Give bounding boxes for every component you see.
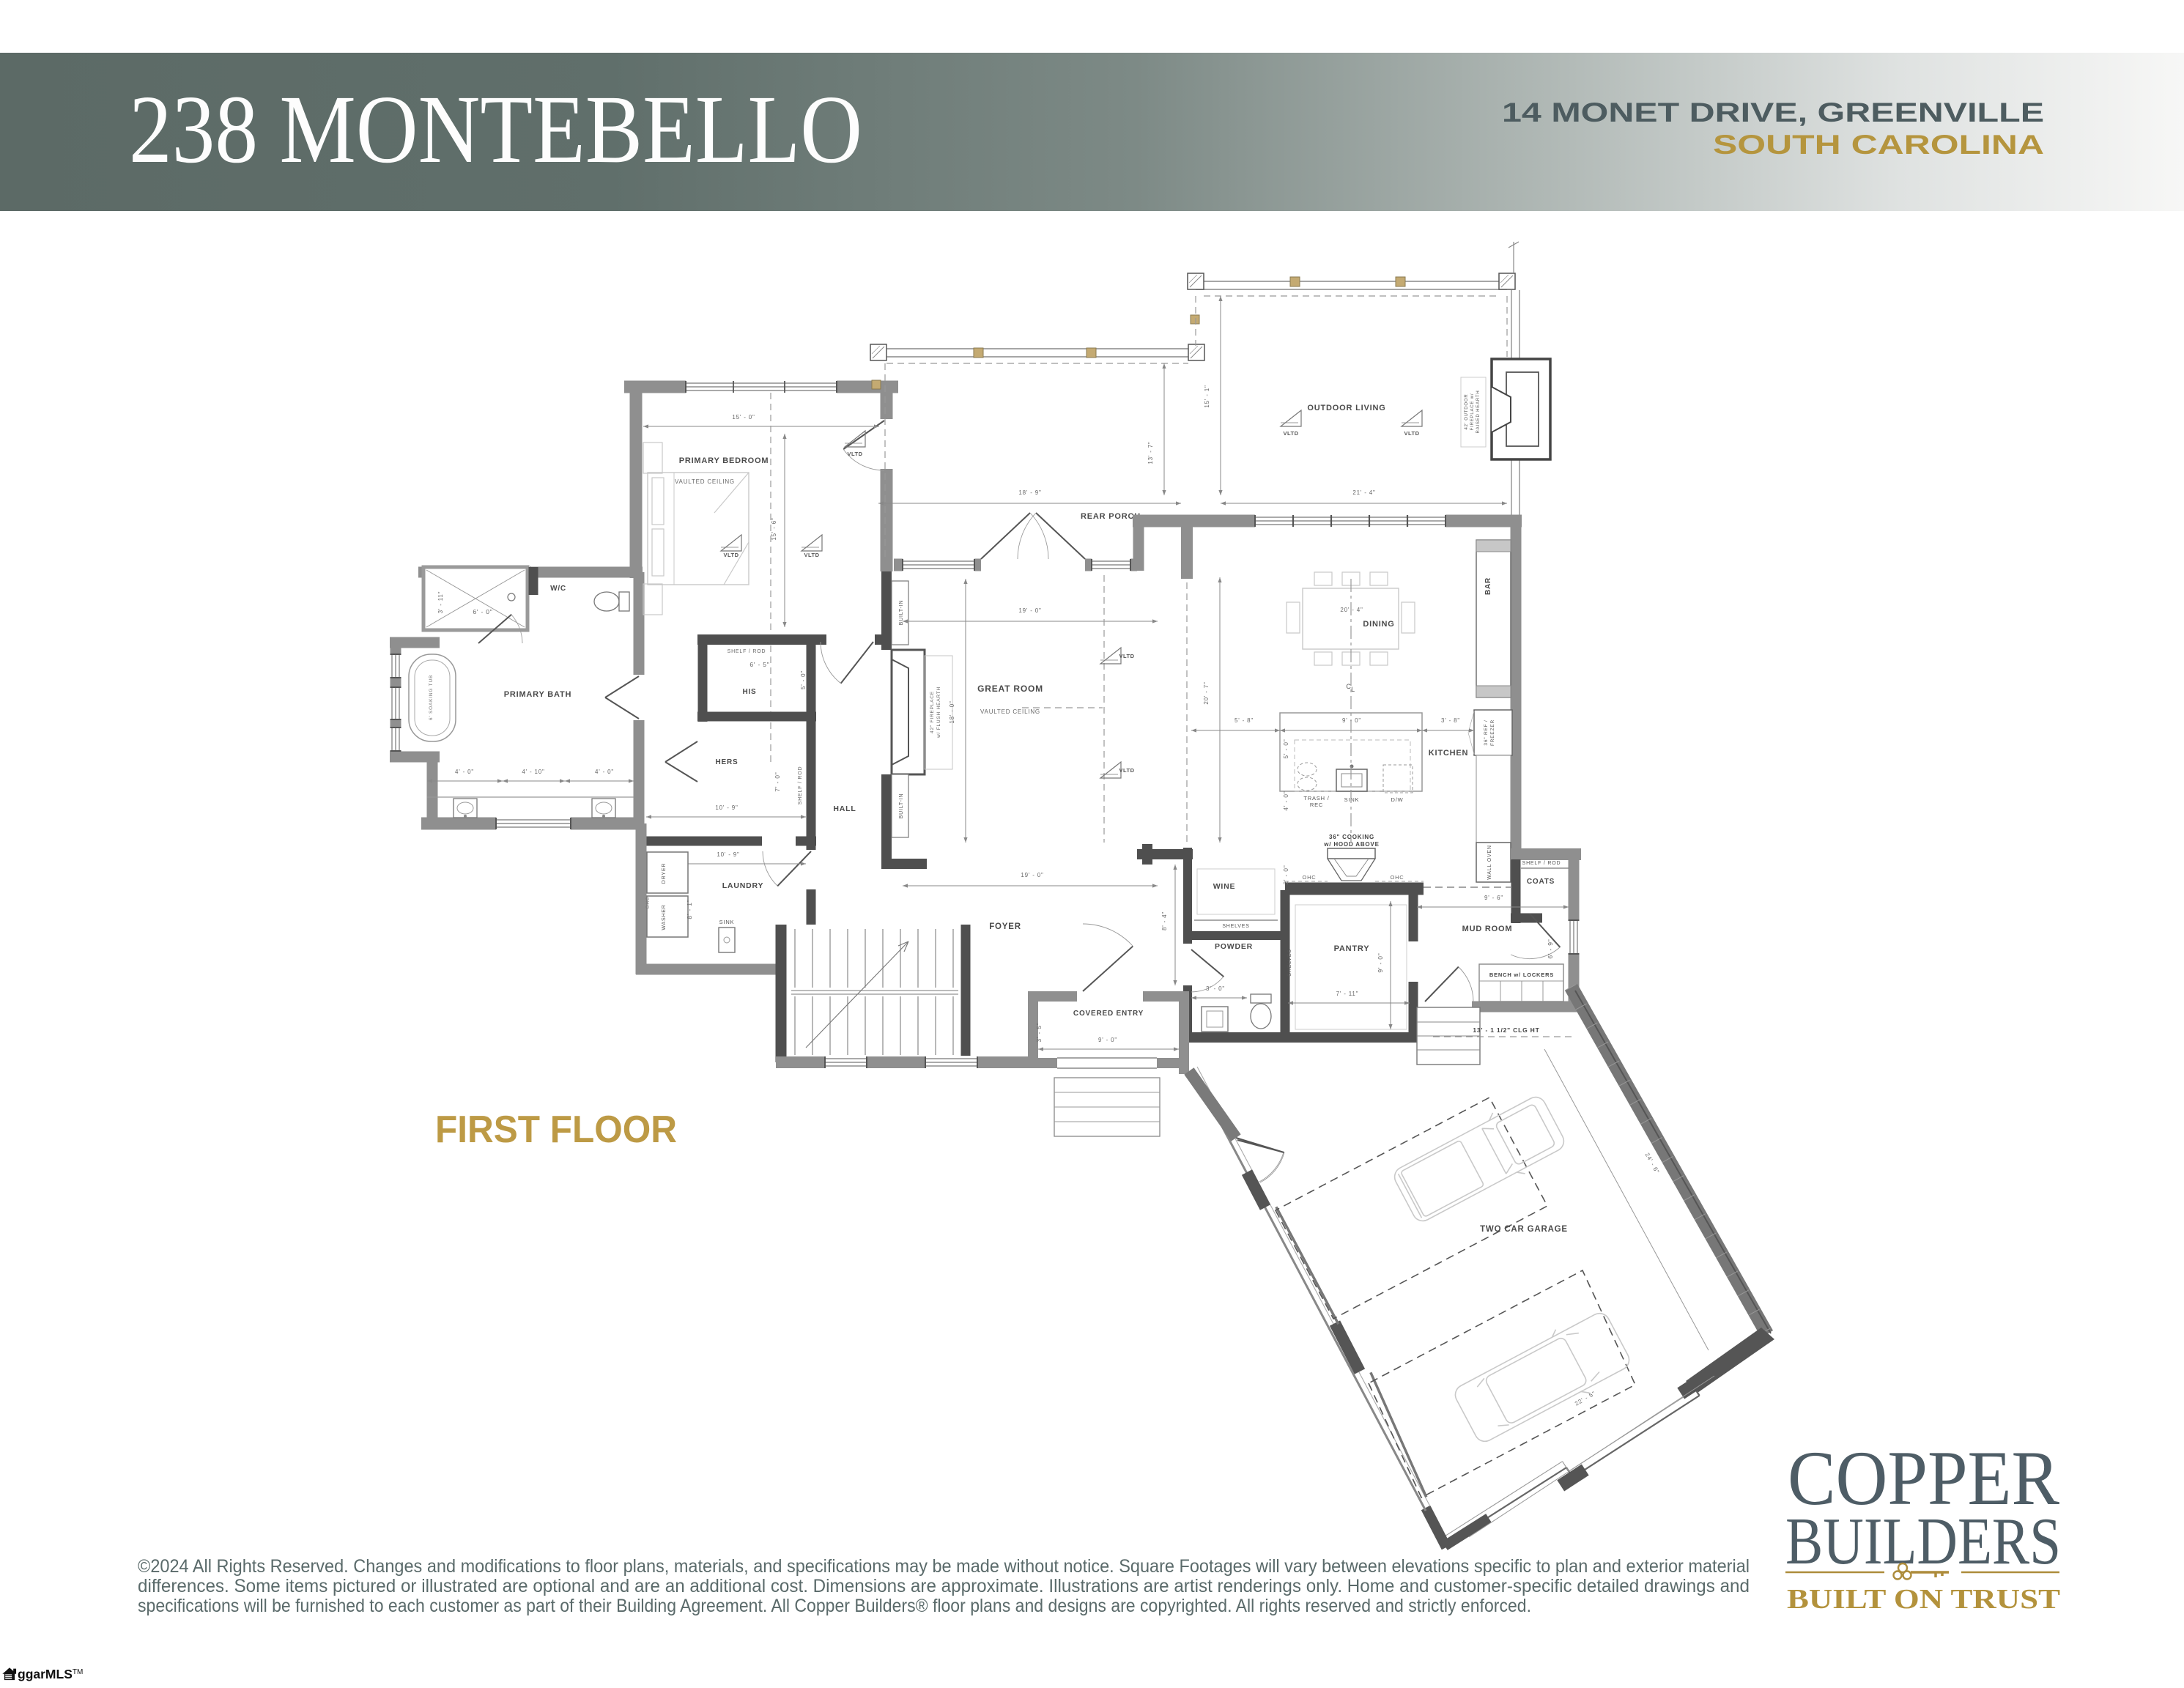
- svg-text:9' - 6": 9' - 6": [1484, 895, 1503, 901]
- svg-text:WALL OVEN: WALL OVEN: [1487, 845, 1492, 880]
- svg-text:BUILDERS: BUILDERS: [1785, 1504, 2061, 1578]
- svg-text:KITCHEN: KITCHEN: [1429, 749, 1469, 758]
- svg-text:14 MONET DRIVE, GREENVILLE: 14 MONET DRIVE, GREENVILLE: [1502, 97, 2044, 127]
- svg-text:238 MONTEBELLO: 238 MONTEBELLO: [129, 75, 862, 183]
- svg-text:36" COOKING: 36" COOKING: [1329, 834, 1374, 840]
- svg-text:BUILT ON TRUST: BUILT ON TRUST: [1787, 1584, 2060, 1615]
- svg-text:7' - 11": 7' - 11": [1336, 991, 1359, 997]
- svg-text:6' SOAKING TUB: 6' SOAKING TUB: [429, 675, 434, 720]
- svg-text:BAR: BAR: [1484, 577, 1492, 595]
- svg-text:HALL: HALL: [833, 804, 856, 813]
- svg-text:15' - 6": 15' - 6": [771, 517, 777, 540]
- svg-text:COATS: COATS: [1527, 878, 1555, 886]
- svg-text:36" REF /: 36" REF /: [1484, 719, 1489, 745]
- svg-text:19' - 0": 19' - 0": [1018, 607, 1041, 614]
- svg-text:13' - 1 1/2" CLG HT: 13' - 1 1/2" CLG HT: [1473, 1026, 1539, 1034]
- svg-text:13' - 7": 13' - 7": [1147, 441, 1154, 464]
- svg-text:4' - 10": 4' - 10": [522, 769, 544, 775]
- svg-text:3' - 8": 3' - 8": [1441, 717, 1460, 724]
- svg-text:4' - 0": 4' - 0": [1282, 791, 1289, 810]
- svg-text:FIREPLACE w/: FIREPLACE w/: [1470, 393, 1475, 431]
- svg-text:BENCH w/ LOCKERS: BENCH w/ LOCKERS: [1489, 971, 1554, 978]
- svg-text:21' - 4": 21' - 4": [1352, 489, 1375, 496]
- svg-text:10' - 9": 10' - 9": [715, 804, 738, 811]
- svg-text:SHELF / ROD: SHELF / ROD: [728, 649, 766, 654]
- svg-text:FREEZER: FREEZER: [1490, 719, 1495, 746]
- svg-text:20' - 4": 20' - 4": [1340, 607, 1363, 613]
- svg-text:19' - 0": 19' - 0": [1021, 872, 1043, 878]
- svg-text:OUTDOOR LIVING: OUTDOOR LIVING: [1307, 404, 1385, 412]
- svg-text:SINK: SINK: [1344, 796, 1360, 803]
- svg-text:VAULTED CEILING: VAULTED CEILING: [675, 478, 735, 485]
- svg-text:DRYER: DRYER: [662, 863, 667, 884]
- svg-text:OHC: OHC: [1302, 874, 1316, 881]
- svg-text:15' - 1": 15' - 1": [1204, 385, 1210, 407]
- svg-text:BUILT-IN: BUILT-IN: [899, 793, 904, 819]
- svg-text:8' - 4": 8' - 4": [1161, 911, 1168, 930]
- svg-text:REAR PORCH: REAR PORCH: [1081, 512, 1141, 521]
- svg-text:15' - 0": 15' - 0": [732, 414, 755, 421]
- svg-text:HERS: HERS: [716, 758, 739, 766]
- svg-text:SHELVES: SHELVES: [1222, 924, 1249, 929]
- svg-text:RAISED HEARTH: RAISED HEARTH: [1476, 390, 1481, 434]
- svg-text:GREAT ROOM: GREAT ROOM: [977, 684, 1043, 694]
- svg-text:VLTD: VLTD: [1119, 767, 1134, 774]
- svg-text:W/C: W/C: [550, 585, 566, 593]
- svg-text:PRIMARY BATH: PRIMARY BATH: [504, 690, 572, 699]
- svg-text:L: L: [1351, 686, 1355, 693]
- svg-text:VLTD: VLTD: [1119, 653, 1134, 659]
- svg-text:VLTD: VLTD: [723, 552, 739, 558]
- svg-text:6' - 9": 6' - 9": [1547, 939, 1554, 958]
- svg-text:7' - 0": 7' - 0": [774, 771, 781, 791]
- svg-text:PANTRY: PANTRY: [1334, 944, 1370, 953]
- svg-text:9' - 0": 9' - 0": [1377, 952, 1384, 972]
- svg-text:6' - 5": 6' - 5": [749, 661, 769, 668]
- svg-text:42" FIREPLACE: 42" FIREPLACE: [930, 691, 935, 733]
- svg-text:POWDER: POWDER: [1215, 942, 1253, 951]
- svg-text:42' OUTDOOR: 42' OUTDOOR: [1465, 394, 1469, 430]
- svg-text:WASHER: WASHER: [662, 904, 667, 930]
- svg-text:LAUNDRY: LAUNDRY: [722, 881, 764, 890]
- svg-text:3' - 5": 3' - 5": [1035, 1022, 1043, 1042]
- svg-text:PRIMARY BEDROOM: PRIMARY BEDROOM: [679, 456, 769, 465]
- svg-text:OHC: OHC: [645, 897, 651, 909]
- svg-text:3' - 0": 3' - 0": [1206, 985, 1225, 992]
- svg-text:VAULTED CEILING: VAULTED CEILING: [980, 708, 1040, 715]
- svg-text:OHC: OHC: [1390, 874, 1404, 881]
- svg-text:D/W: D/W: [1391, 796, 1404, 803]
- svg-text:20' - 7": 20' - 7": [1203, 681, 1210, 704]
- svg-text:TRASH /: TRASH /: [1303, 795, 1329, 802]
- svg-text:VLTD: VLTD: [1404, 430, 1419, 437]
- svg-text:SHELF / ROD: SHELF / ROD: [1522, 861, 1561, 866]
- svg-text:5' - 8": 5' - 8": [1234, 717, 1254, 724]
- svg-text:4' - 0": 4' - 0": [595, 769, 614, 775]
- svg-text:VLTD: VLTD: [804, 552, 819, 558]
- svg-text:SHELF / ROD: SHELF / ROD: [798, 766, 803, 805]
- svg-text:REC: REC: [1310, 802, 1323, 808]
- svg-text:specifications will be furnish: specifications will be furnished to each…: [138, 1596, 1531, 1616]
- svg-text:MUD ROOM: MUD ROOM: [1462, 925, 1513, 933]
- svg-text:18' - 0": 18' - 0": [949, 700, 955, 723]
- svg-text:HIS: HIS: [742, 688, 756, 696]
- svg-text:VLTD: VLTD: [1283, 430, 1298, 437]
- svg-text:6' - 0": 6' - 0": [473, 608, 492, 615]
- svg-text:8' - 1": 8' - 1": [686, 899, 693, 919]
- svg-text:©2024 All Rights Reserved. Cha: ©2024 All Rights Reserved. Changes and m…: [138, 1556, 1750, 1577]
- svg-text:9' - 0": 9' - 0": [1342, 717, 1361, 724]
- svg-text:5' - 0": 5' - 0": [800, 670, 807, 689]
- svg-text:3' - 11": 3' - 11": [437, 591, 444, 614]
- svg-text:4' - 0": 4' - 0": [455, 769, 474, 775]
- svg-text:SOUTH CAROLINA: SOUTH CAROLINA: [1713, 129, 2044, 160]
- svg-text:5' - 0": 5' - 0": [1282, 738, 1289, 758]
- svg-text:SHELVES: SHELVES: [1287, 949, 1292, 976]
- svg-text:9' - 0": 9' - 0": [1098, 1037, 1117, 1043]
- svg-text:18' - 9": 18' - 9": [1018, 489, 1041, 496]
- svg-text:SINK: SINK: [719, 919, 735, 925]
- svg-text:TWO CAR GARAGE: TWO CAR GARAGE: [1480, 1225, 1568, 1234]
- svg-text:differences. Some items pictur: differences. Some items pictured or illu…: [138, 1576, 1750, 1596]
- svg-text:10' - 9": 10' - 9": [717, 851, 739, 858]
- svg-text:VLTD: VLTD: [847, 451, 862, 457]
- svg-text:FIRST FLOOR: FIRST FLOOR: [435, 1108, 677, 1151]
- svg-text:2' - 0": 2' - 0": [1282, 865, 1289, 884]
- svg-text:COVERED ENTRY: COVERED ENTRY: [1073, 1010, 1144, 1018]
- svg-text:FOYER: FOYER: [989, 922, 1021, 931]
- svg-text:WINE: WINE: [1213, 882, 1236, 891]
- svg-text:w/ FLUSH HEARTH: w/ FLUSH HEARTH: [936, 686, 941, 738]
- svg-text:DINING: DINING: [1363, 620, 1394, 629]
